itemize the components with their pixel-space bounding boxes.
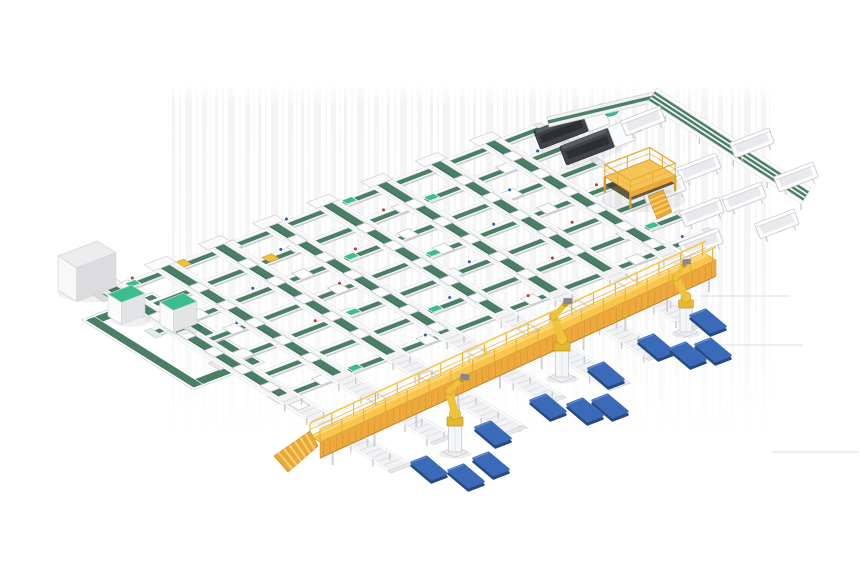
sorting-facility-render xyxy=(0,0,860,580)
status-dot xyxy=(424,333,427,336)
status-dot xyxy=(571,221,574,224)
status-dot xyxy=(468,260,471,263)
status-dot xyxy=(338,282,341,285)
status-dot xyxy=(681,235,684,238)
status-dot xyxy=(551,257,554,260)
status-dot xyxy=(251,287,254,290)
status-dot xyxy=(285,217,288,220)
robot-gripper xyxy=(460,373,470,380)
status-dot xyxy=(448,296,451,299)
robot-gripper xyxy=(682,259,691,265)
status-dot xyxy=(131,277,134,280)
status-dot xyxy=(279,248,282,251)
facility-3d-illustration xyxy=(0,0,860,580)
status-dot xyxy=(595,183,598,186)
status-dot xyxy=(354,247,357,250)
robot-gripper xyxy=(563,298,572,304)
status-dot xyxy=(492,223,495,226)
status-dot xyxy=(382,208,385,211)
status-dot xyxy=(314,319,317,322)
status-dot xyxy=(508,188,511,191)
status-dot xyxy=(527,294,530,297)
